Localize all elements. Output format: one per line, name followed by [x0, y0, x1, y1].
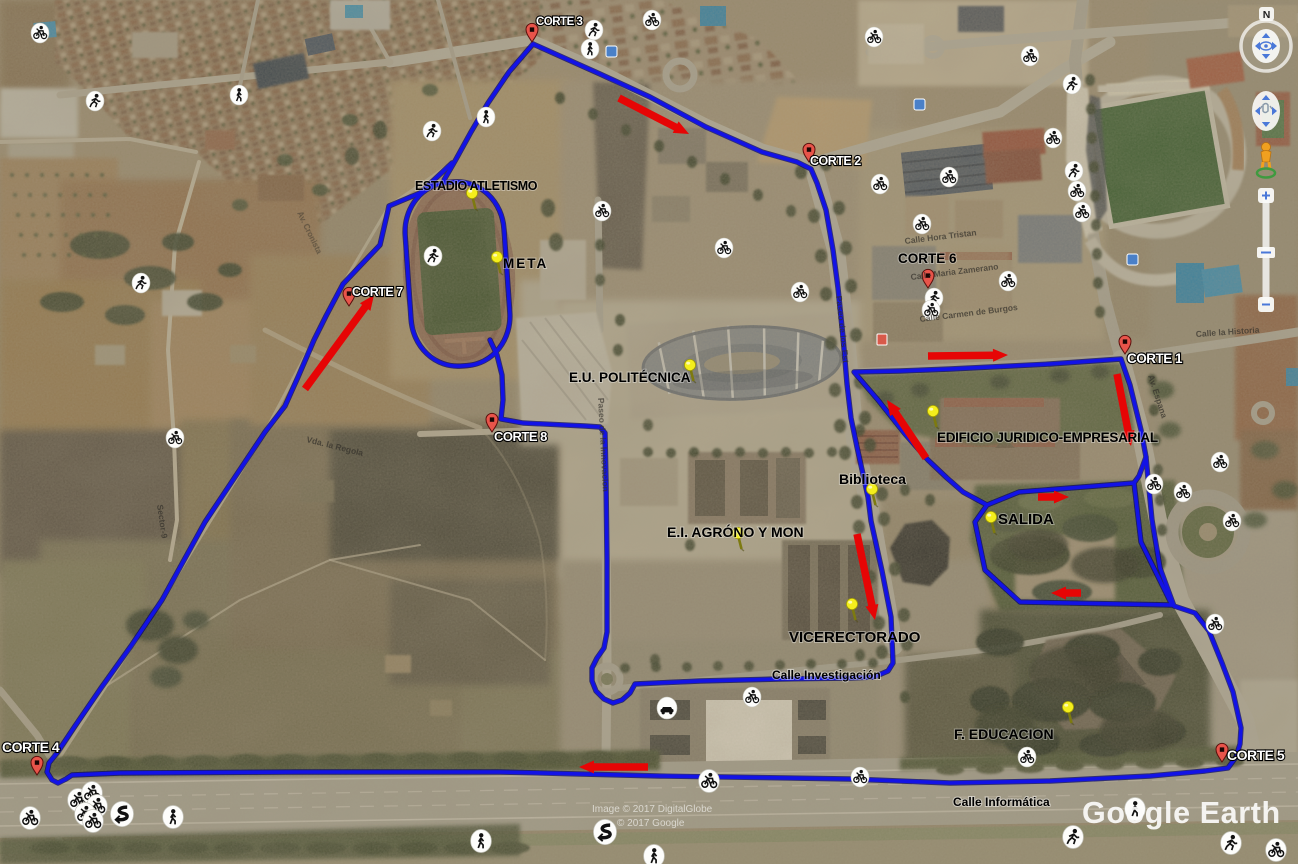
svg-text:CORTE 7: CORTE 7	[352, 285, 403, 299]
svg-text:Calle Informática: Calle Informática	[953, 795, 1050, 809]
svg-text:CORTE 1: CORTE 1	[1127, 351, 1183, 366]
svg-text:SALIDA: SALIDA	[998, 511, 1054, 528]
svg-text:Google Earth: Google Earth	[1082, 796, 1281, 830]
svg-text:CORTE 5: CORTE 5	[1227, 747, 1285, 763]
svg-text:Image © 2017 DigitalGlobe: Image © 2017 DigitalGlobe	[592, 804, 713, 815]
svg-text:CORTE 4: CORTE 4	[2, 739, 60, 755]
svg-text:CORTE 8: CORTE 8	[494, 429, 547, 444]
svg-text:META: META	[503, 256, 548, 271]
svg-text:CORTE 6: CORTE 6	[898, 251, 957, 266]
svg-text:E.I. AGRÓNO Y MON: E.I. AGRÓNO Y MON	[667, 523, 804, 540]
svg-text:F. EDUCACION: F. EDUCACION	[954, 726, 1054, 742]
svg-text:© 2017 Google: © 2017 Google	[617, 818, 685, 829]
svg-text:CORTE 3: CORTE 3	[536, 16, 582, 28]
svg-text:ESTADIO ATLETISMO: ESTADIO ATLETISMO	[415, 179, 538, 193]
svg-text:EDIFICIO JURIDICO-EMPRESARIAL: EDIFICIO JURIDICO-EMPRESARIAL	[937, 430, 1158, 445]
svg-text:CORTE 2: CORTE 2	[810, 154, 861, 168]
svg-text:Calle Investigación: Calle Investigación	[772, 668, 881, 682]
svg-text:Biblioteca: Biblioteca	[839, 471, 906, 487]
svg-text:N: N	[1263, 9, 1271, 21]
svg-text:VICERECTORADO: VICERECTORADO	[789, 629, 921, 646]
svg-text:E.U. POLITÉCNICA: E.U. POLITÉCNICA	[569, 370, 691, 385]
